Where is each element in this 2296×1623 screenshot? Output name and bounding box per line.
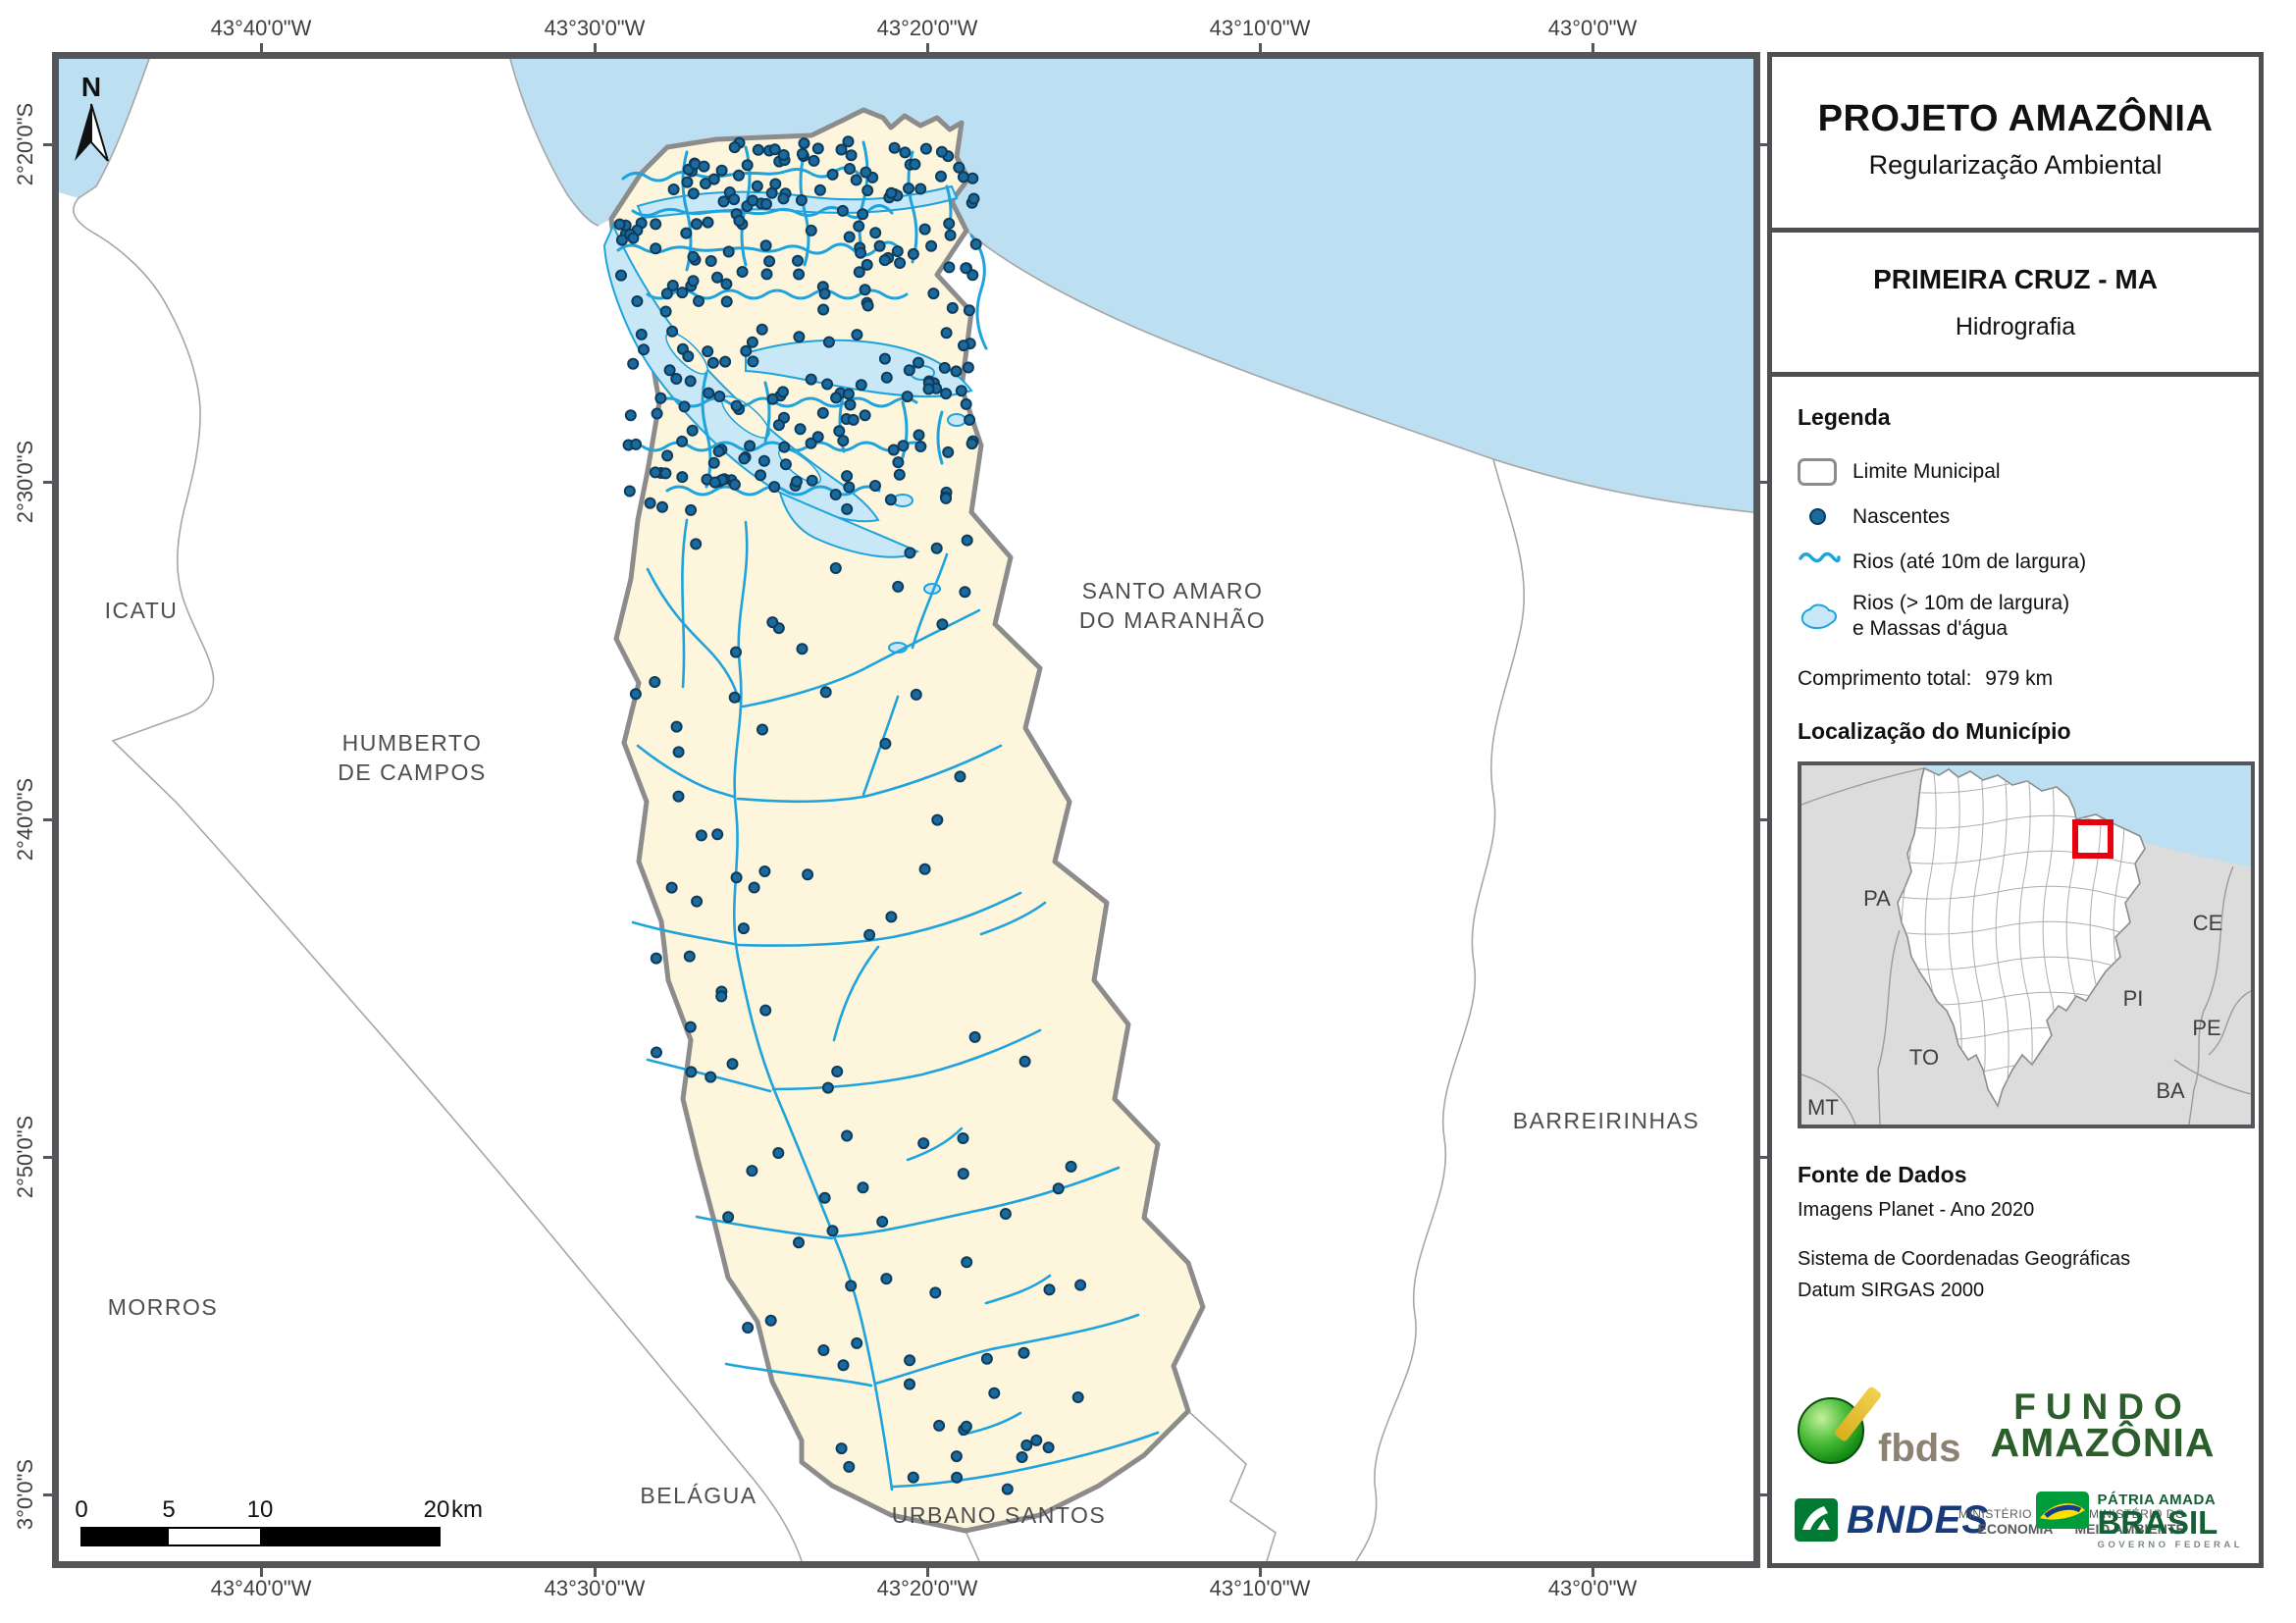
nascente-point [773, 1148, 783, 1158]
nascente-point [842, 471, 852, 481]
nascente-point [861, 168, 870, 178]
map-layout-page: { "colors": { "frame": "#54565A", "ocean… [0, 0, 2296, 1623]
nascente-point [921, 144, 931, 154]
main-map-frame: N 0 5 10 20 km ICATU HUMBERTO DE CAMPOS … [52, 52, 1760, 1568]
graticule-tick [43, 1493, 53, 1496]
nascente-point [962, 1422, 971, 1432]
fundo-line-1: FUNDO [1962, 1389, 2243, 1424]
municipality-polygon [611, 110, 1203, 1531]
nascente-point [952, 1451, 962, 1461]
nascente-point [677, 472, 687, 482]
nascente-point [719, 196, 729, 206]
nascente-point [704, 218, 713, 228]
nascente-point [839, 1360, 849, 1370]
fundo-line-2: AMAZÔNIA [1962, 1424, 2243, 1462]
main-map-canvas: N 0 5 10 20 km ICATU HUMBERTO DE CAMPOS … [59, 59, 1753, 1561]
scale-unit: km [451, 1496, 483, 1523]
label-pa: PA [1863, 886, 1891, 911]
nascente-point [870, 481, 880, 491]
nascente-point [852, 330, 861, 340]
nascente-point [694, 296, 704, 306]
nascente-point [915, 442, 925, 451]
nascente-point [748, 338, 757, 347]
label-humberto-2: DE CAMPOS [338, 759, 487, 785]
nascente-point [651, 243, 660, 253]
scale-label-20: 20 [424, 1496, 450, 1523]
nascente-point [903, 392, 913, 401]
nascente-point [862, 185, 872, 195]
nascente-point [800, 138, 809, 148]
label-belagua: BELÁGUA [640, 1483, 757, 1508]
brasil-flag-icon [2036, 1492, 2089, 1529]
nascente-point [741, 346, 751, 356]
nascente-point [756, 470, 765, 480]
nascente-point [956, 771, 965, 781]
nascente-point [910, 159, 919, 169]
nascente-point [655, 393, 665, 403]
graticule-label: 2°20'0"S [13, 103, 38, 185]
nascente-point [764, 256, 774, 266]
massas-line-1: Rios (> 10m de largura) [1852, 592, 2069, 614]
nascente-point [760, 1006, 770, 1016]
nascente-point [875, 241, 885, 251]
nascente-point [967, 439, 977, 448]
nascente-point [794, 270, 804, 280]
nascente-point [837, 1443, 847, 1453]
nascente-symbol [1809, 508, 1826, 525]
nascente-point [759, 866, 769, 876]
nascente-point [686, 1022, 696, 1032]
nascente-point [626, 410, 636, 420]
nascente-point [710, 478, 720, 488]
nascente-point [794, 332, 804, 341]
nascente-point [852, 175, 861, 184]
nascente-point [674, 747, 684, 757]
fonte-line-2: Sistema de Coordenadas Geográficas [1798, 1248, 2130, 1271]
label-ba: BA [2156, 1078, 2185, 1103]
fonte-heading: Fonte de Dados [1798, 1162, 1967, 1188]
nascente-point [665, 365, 675, 375]
nascente-point [962, 1257, 971, 1267]
nascente-point [781, 459, 791, 469]
nascente-point [971, 239, 981, 249]
nascente-point [651, 467, 660, 477]
nascente-point [759, 456, 769, 466]
project-title: PROJETO AMAZÔNIA [1772, 98, 2259, 140]
nascente-point [631, 440, 641, 449]
massas-line-2: e Massas d'água [1852, 617, 2008, 640]
nascente-point [828, 1226, 838, 1235]
graticule-tick [926, 43, 929, 53]
nascente-point [757, 325, 767, 335]
label-urbano-santos: URBANO SANTOS [892, 1502, 1106, 1528]
nascente-point [912, 690, 921, 700]
nascente-point [861, 285, 870, 294]
nascente-point [914, 430, 924, 440]
nascente-point [1075, 1281, 1085, 1290]
nascente-point [743, 160, 753, 170]
nascente-point [937, 147, 947, 157]
nascente-point [905, 365, 914, 375]
nascente-point [724, 247, 734, 257]
nascente-point [821, 687, 831, 697]
nascente-point [940, 363, 950, 373]
nascente-point [954, 163, 964, 173]
nascente-point [959, 172, 968, 182]
nascente-point [944, 262, 954, 272]
nascente-point [858, 209, 867, 219]
nascente-point [890, 143, 900, 153]
nascente-point [730, 480, 740, 490]
label-mt: MT [1807, 1095, 1839, 1120]
nascente-point [793, 256, 803, 266]
comprimento-label: Comprimento total: [1798, 667, 1971, 690]
nascente-point [743, 1323, 753, 1333]
nascente-point [748, 356, 757, 366]
nascente-point [944, 219, 954, 229]
nascente-point [692, 219, 702, 229]
fonte-line-1: Imagens Planet - Ano 2020 [1798, 1199, 2034, 1222]
water-mass-symbol [1798, 601, 1841, 639]
nascente-point [844, 390, 854, 399]
nascente-point [877, 1217, 887, 1227]
nascente-point [616, 271, 626, 281]
nascente-point [846, 1281, 856, 1290]
nascente-point [809, 156, 819, 166]
scale-label-0: 0 [75, 1496, 87, 1523]
nascente-point [731, 648, 741, 657]
nascente-point [926, 241, 936, 251]
nascente-point [689, 252, 699, 262]
comprimento-total: Comprimento total: 979 km [1798, 667, 2053, 691]
nascente-point [861, 410, 870, 420]
nascente-point [813, 432, 823, 442]
nascente-point [1001, 1209, 1011, 1219]
nascente-point [766, 1316, 776, 1326]
nascente-point [689, 188, 699, 198]
title-panel: PROJETO AMAZÔNIA Regularização Ambiental [1767, 52, 2264, 233]
graticule-label: 43°0'0"W [1548, 1576, 1638, 1601]
nascente-point [729, 194, 739, 204]
nascente-point [770, 180, 780, 189]
nascente-point [932, 815, 942, 825]
graticule-tick [43, 1156, 53, 1159]
nascente-point [859, 1182, 868, 1192]
nascente-point [886, 912, 896, 921]
nascente-point [1019, 1348, 1029, 1358]
nascente-point [657, 502, 667, 512]
graticule-label: 43°0'0"W [1548, 16, 1638, 41]
nascente-point [818, 305, 828, 315]
north-arrow-label: N [81, 72, 101, 102]
nascente-point [706, 256, 716, 266]
nascente-point [837, 145, 847, 155]
graticule-tick [1259, 43, 1262, 53]
nascente-point [762, 269, 772, 279]
nascente-point [700, 162, 709, 172]
nascente-point [739, 453, 749, 463]
nascente-point [915, 184, 925, 194]
nascente-point [964, 363, 973, 373]
nascente-point [667, 883, 677, 893]
nascente-point [646, 498, 655, 508]
nascente-point [681, 229, 691, 238]
nascente-point [963, 536, 972, 546]
nascente-point [831, 490, 841, 499]
nascente-point [965, 415, 974, 425]
nascente-point [831, 393, 841, 402]
nascente-point [779, 443, 789, 452]
nascente-point [969, 194, 979, 204]
nascente-point [943, 447, 953, 457]
nascente-point [909, 1473, 918, 1483]
nascente-point [838, 436, 848, 445]
nascente-point [628, 234, 638, 243]
localizacao-heading: Localização do Município [1798, 718, 2071, 745]
nascente-point [864, 930, 874, 940]
nascente-point [820, 1193, 830, 1203]
nascente-point [952, 1473, 962, 1483]
nascente-point [831, 563, 841, 573]
governo-federal-logo: PÁTRIA AMADA BRASIL GOVERNO FEDERAL [2036, 1492, 2243, 1550]
nascente-point [686, 1067, 696, 1076]
nascente-point [909, 249, 918, 259]
nascente-point [905, 1380, 914, 1389]
nascente-point [946, 231, 956, 240]
nascente-point [828, 170, 838, 180]
label-humberto-1: HUMBERTO [342, 730, 483, 756]
label-santo-amaro-2: DO MARANHÃO [1079, 607, 1266, 633]
legend-item-label: Nascentes [1852, 504, 1950, 530]
nascente-point [617, 236, 627, 245]
nascente-point [857, 380, 866, 390]
nascente-point [754, 145, 763, 155]
graticule-tick [594, 43, 597, 53]
nascente-point [942, 328, 952, 338]
nascente-point [671, 374, 681, 384]
nascente-point [779, 193, 789, 203]
nascente-point [807, 226, 816, 236]
nascente-point [650, 677, 659, 687]
nascente-point [709, 458, 719, 468]
nascente-point [652, 954, 661, 964]
graticule-label: 43°30'0"W [545, 16, 646, 41]
nascente-point [970, 1032, 980, 1042]
nascente-point [717, 166, 727, 176]
nascente-point [982, 1354, 992, 1364]
nascente-point [824, 338, 834, 347]
graticule-label: 2°30'0"S [13, 441, 38, 523]
nascente-point [714, 392, 724, 401]
nascente-point [730, 142, 740, 152]
nascente-point [747, 1166, 757, 1176]
legend-heading: Legenda [1798, 404, 1891, 431]
nascente-point [798, 644, 808, 654]
nascente-point [774, 420, 784, 430]
nascente-point [734, 171, 744, 181]
nascente-point [1044, 1442, 1054, 1452]
nascente-point [625, 487, 635, 497]
nascente-point [686, 376, 696, 386]
nascente-point [1003, 1485, 1013, 1494]
nascente-point [854, 222, 863, 232]
nascente-point [730, 693, 740, 703]
nascente-point [745, 441, 755, 450]
nascente-point [796, 424, 806, 434]
nascente-point [685, 952, 695, 962]
nascente-point [842, 504, 852, 514]
graticule-tick [260, 43, 263, 53]
nascente-point [905, 548, 914, 557]
nascente-point [672, 722, 682, 732]
nascente-point [722, 296, 732, 306]
nascente-point [920, 225, 930, 235]
nascente-point [691, 539, 701, 549]
nascente-point [813, 143, 823, 153]
nascente-point [708, 358, 718, 368]
label-barreirinhas: BARREIRINHAS [1513, 1108, 1700, 1133]
nascente-point [767, 617, 777, 627]
label-pi: PI [2123, 986, 2144, 1011]
nascente-point [692, 897, 702, 907]
graticule-label: 43°10'0"W [1210, 1576, 1311, 1601]
nascente-point [918, 1138, 928, 1148]
patria-line-3: GOVERNO FEDERAL [2097, 1540, 2243, 1550]
nascente-point [652, 409, 662, 419]
nascente-point [886, 188, 896, 198]
nascente-point [852, 1338, 861, 1348]
nascente-point [930, 1287, 940, 1297]
nascente-point [844, 483, 854, 493]
nascente-point [959, 1133, 968, 1143]
nascente-point [932, 544, 942, 553]
graticule-label: 43°30'0"W [545, 1576, 646, 1601]
nascente-point [882, 373, 892, 383]
nascente-point [1021, 1440, 1031, 1450]
nascente-point [738, 267, 748, 277]
nascente-point [704, 389, 713, 398]
graticule-label: 43°40'0"W [211, 16, 312, 41]
nascente-point [701, 179, 710, 188]
nascente-point [823, 1083, 833, 1093]
nascente-point [716, 991, 726, 1001]
nascente-point [651, 219, 660, 229]
nascente-point [792, 477, 802, 487]
nascente-point [889, 445, 899, 455]
map-title-panel: PRIMEIRA CRUZ - MA Hidrografia [1767, 228, 2264, 377]
locator-map-canvas: PA CE PI PE TO BA MT [1801, 765, 2251, 1125]
nascente-point [728, 1059, 738, 1069]
nascente-point [615, 220, 625, 230]
nascente-point [677, 288, 687, 297]
nascente-point [900, 147, 910, 157]
nascente-point [721, 279, 731, 288]
nascente-point [639, 344, 649, 354]
nascente-point [770, 144, 780, 154]
graticule-tick [1592, 43, 1594, 53]
label-icatu: ICATU [105, 598, 179, 623]
nascente-point [920, 864, 930, 874]
nascente-point [628, 359, 638, 369]
graticule-label: 43°10'0"W [1210, 16, 1311, 41]
nascente-point [748, 195, 757, 205]
legend-panel: Legenda Limite Municipal Nascentes Rios … [1767, 372, 2264, 1568]
graticule-label: 43°40'0"W [211, 1576, 312, 1601]
scale-bar: 0 5 10 20 km [75, 1496, 483, 1545]
nascente-point [895, 470, 905, 480]
nascente-point [732, 872, 742, 882]
municipality-title: PRIMEIRA CRUZ - MA [1772, 264, 2259, 295]
graticule-label: 2°50'0"S [13, 1116, 38, 1198]
nascente-point [652, 1048, 661, 1058]
nascente-point [761, 199, 771, 209]
nascente-point [904, 183, 913, 193]
fbds-logo: fbds [1798, 1397, 1960, 1464]
nascente-point [967, 174, 977, 183]
label-santo-amaro-1: SANTO AMARO [1082, 578, 1264, 603]
nascente-point [937, 619, 947, 629]
nascente-point [808, 476, 817, 486]
nascente-point [732, 401, 742, 411]
label-ce: CE [2193, 911, 2223, 935]
nascente-point [667, 327, 677, 337]
nascente-point [941, 494, 951, 503]
fundo-amazonia-logo: FUNDO AMAZÔNIA [1962, 1389, 2243, 1462]
nascente-point [757, 725, 767, 735]
project-subtitle: Regularização Ambiental [1772, 150, 2259, 181]
nascente-point [662, 450, 672, 460]
nascente-point [849, 415, 859, 425]
label-morros: MORROS [108, 1294, 219, 1320]
nascente-point [778, 387, 788, 396]
nascente-point [913, 358, 923, 368]
bndes-icon [1794, 1497, 1839, 1543]
nascente-point [682, 178, 692, 187]
nascente-point [734, 216, 744, 226]
nascente-point [856, 248, 865, 258]
nascente-point [753, 182, 762, 191]
nascente-point [893, 457, 903, 467]
nascente-point [680, 401, 690, 411]
nascente-point [960, 587, 969, 597]
river-symbol [1798, 546, 1841, 574]
nascente-point [794, 1237, 804, 1247]
nascente-point [669, 184, 679, 194]
nascente-point [1073, 1392, 1083, 1402]
nascente-point [961, 263, 970, 273]
nascente-point [820, 288, 830, 298]
scale-label-10: 10 [247, 1496, 274, 1523]
nascente-point [924, 385, 934, 394]
nascente-point [893, 582, 903, 592]
nascente-point [818, 408, 828, 418]
label-to: TO [1909, 1045, 1939, 1070]
nascente-point [803, 869, 812, 879]
nascente-point [952, 366, 962, 376]
nascente-point [886, 495, 896, 504]
nascente-point [880, 255, 890, 265]
map-theme: Hidrografia [1772, 313, 2259, 341]
legend-item-label: Rios (> 10m de largura) e Massas d'água [1852, 591, 2069, 642]
nascente-point [697, 830, 706, 840]
nascente-point [948, 303, 958, 313]
nascente-point [714, 446, 724, 456]
nascente-point [845, 164, 855, 174]
nascente-point [962, 399, 971, 409]
nascente-point [1054, 1183, 1064, 1193]
graticule-label: 43°20'0"W [877, 16, 978, 41]
nascente-point [815, 185, 825, 195]
